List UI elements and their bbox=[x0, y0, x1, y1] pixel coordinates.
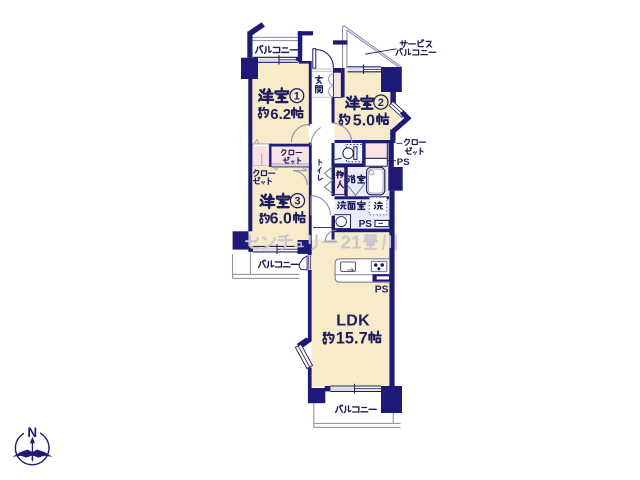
svg-text:PS: PS bbox=[359, 219, 373, 230]
svg-text:LDK: LDK bbox=[336, 313, 370, 330]
svg-text:PS: PS bbox=[397, 157, 410, 168]
svg-text:6.0: 6.0 bbox=[270, 210, 292, 227]
svg-text:15.7: 15.7 bbox=[336, 330, 368, 348]
svg-text:2: 2 bbox=[378, 97, 384, 109]
svg-text:5.0: 5.0 bbox=[353, 112, 375, 129]
svg-text:PS: PS bbox=[375, 285, 389, 296]
svg-text:1: 1 bbox=[294, 91, 300, 103]
svg-text:6.2: 6.2 bbox=[270, 106, 291, 123]
svg-text:3: 3 bbox=[294, 196, 300, 208]
svg-text:21: 21 bbox=[341, 231, 362, 252]
